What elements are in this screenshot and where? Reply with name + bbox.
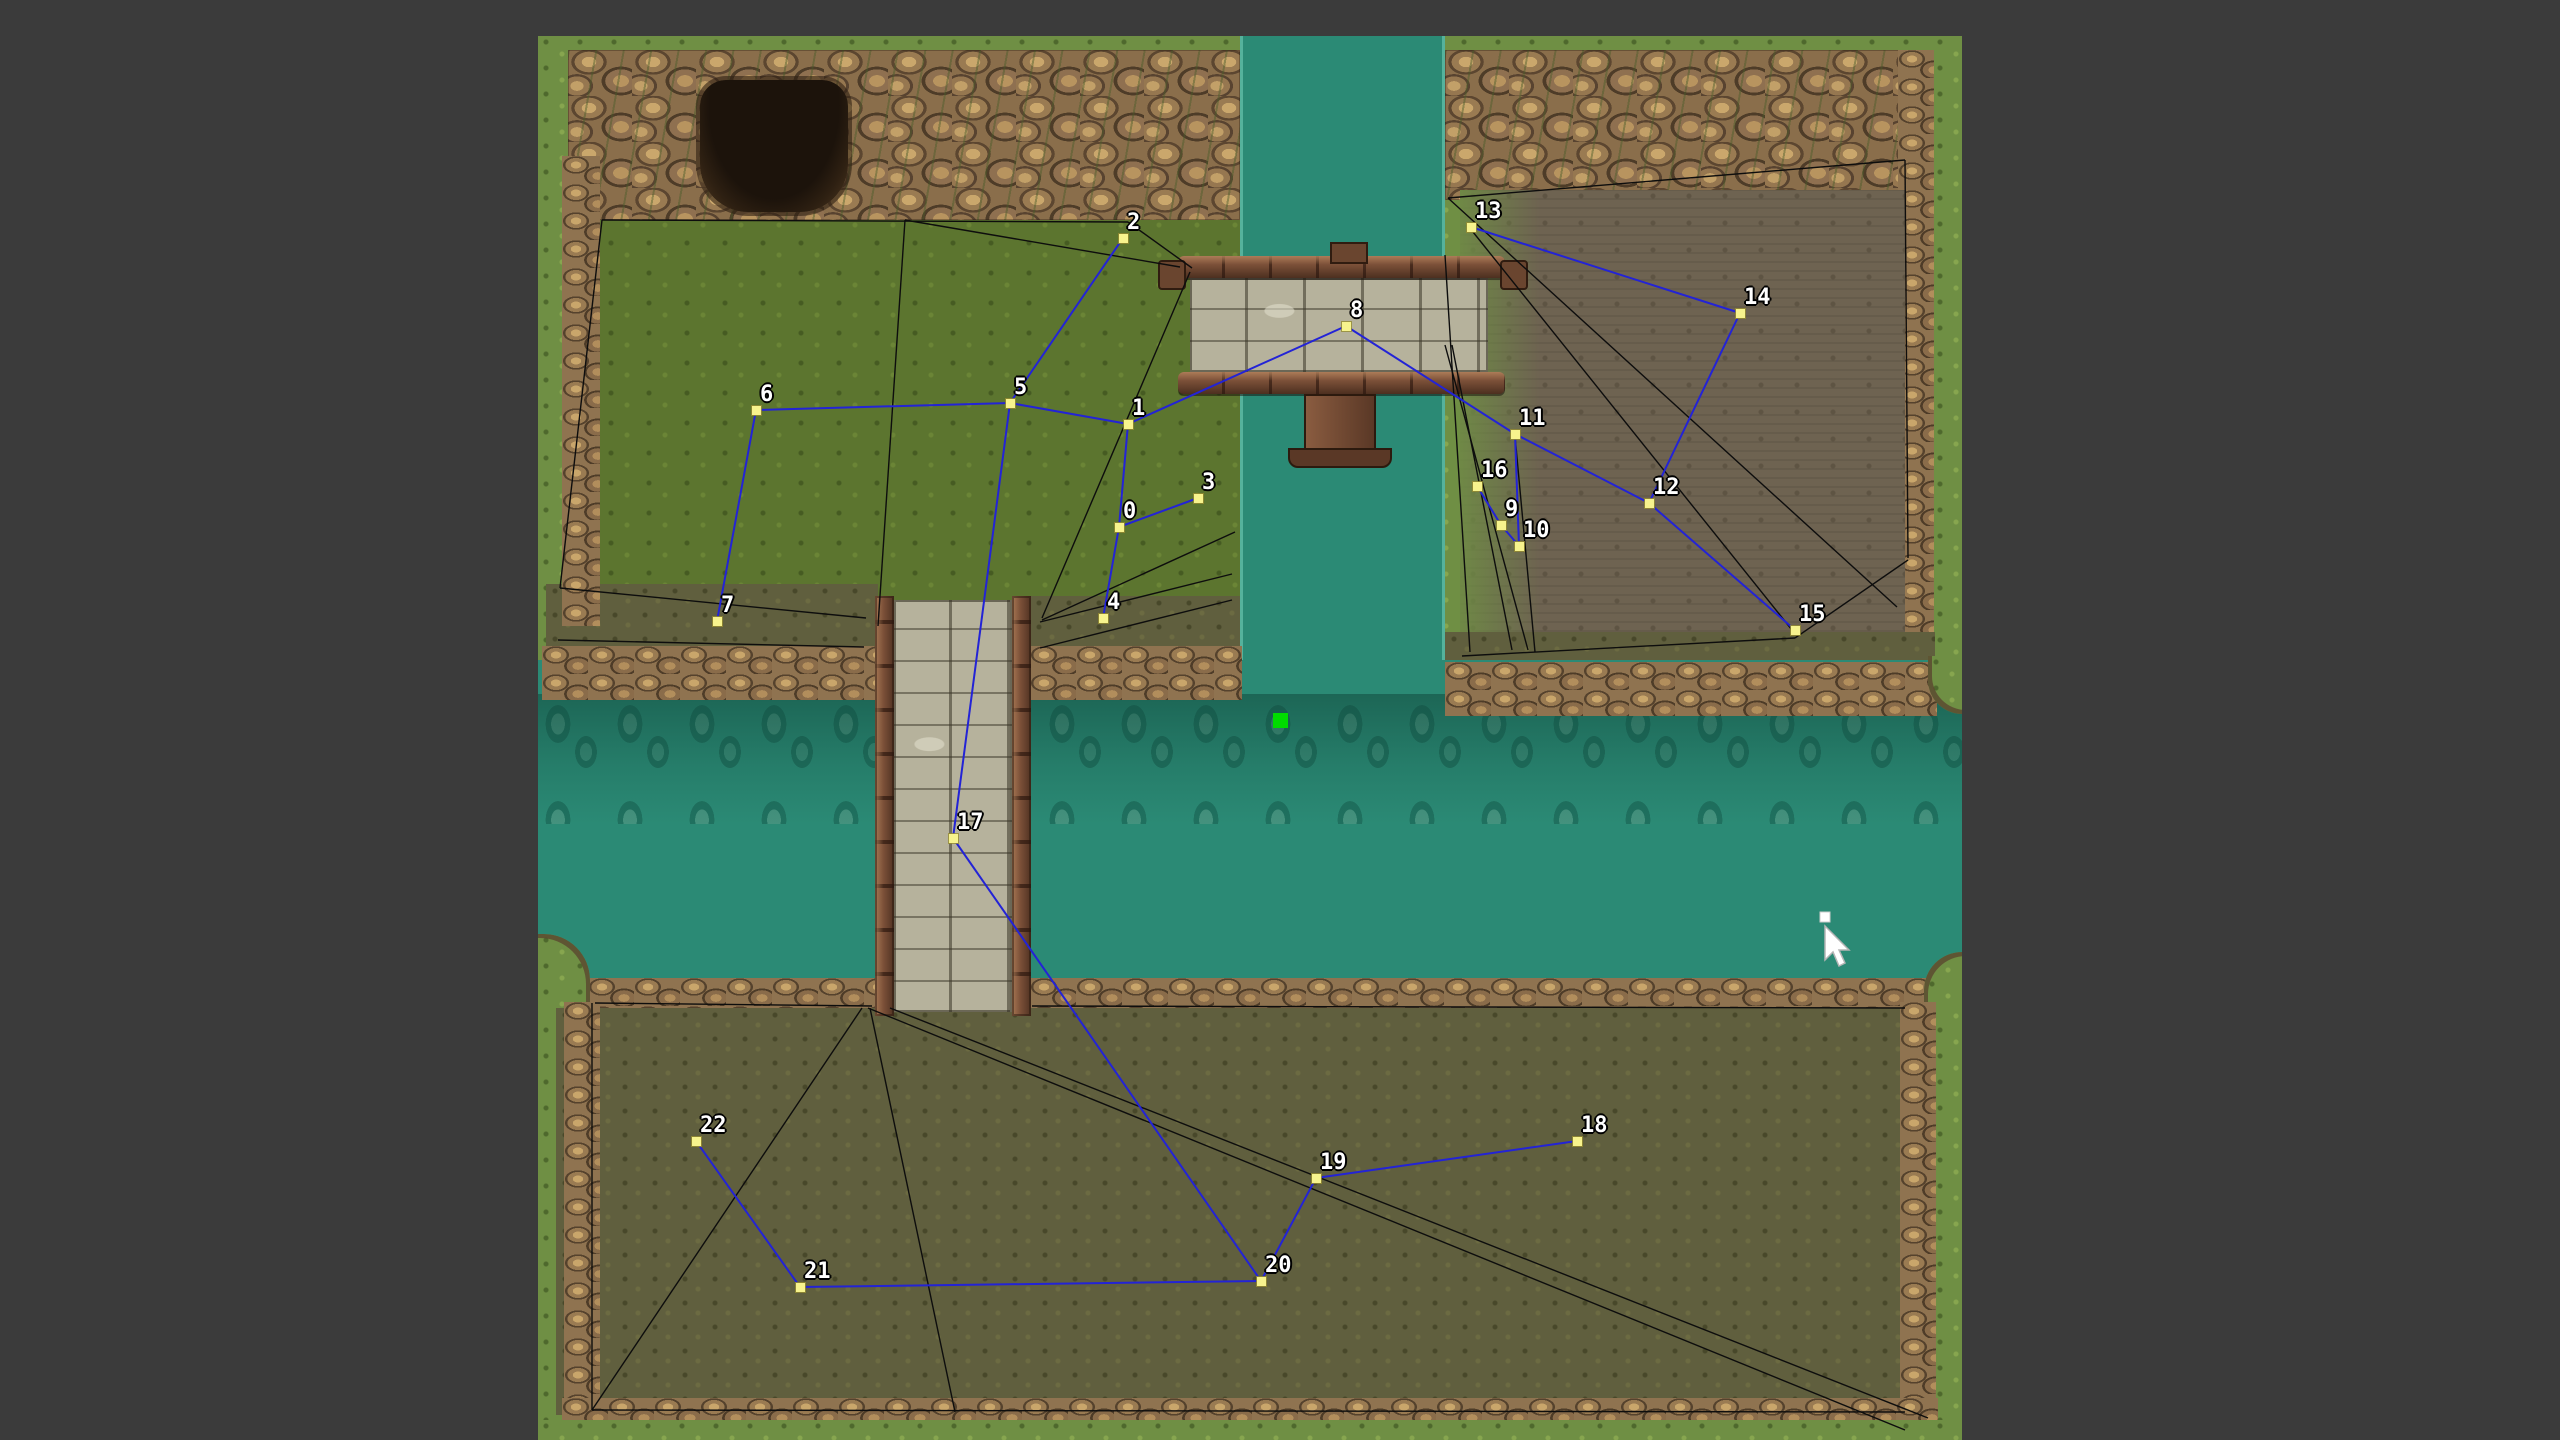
graph-node-label-0: 0 [1123, 501, 1136, 523]
graph-node-3[interactable] [1194, 494, 1203, 503]
graph-node-label-10: 10 [1523, 520, 1550, 542]
navmesh-segment [602, 220, 1128, 222]
navmesh-segment [878, 220, 905, 626]
navmesh-segment [558, 640, 864, 647]
graph-node-10[interactable] [1515, 542, 1524, 551]
navmesh-segment [868, 1008, 1905, 1430]
graph-edge [953, 838, 1261, 1281]
graph-node-label-16: 16 [1481, 460, 1508, 482]
graph-node-22[interactable] [692, 1137, 701, 1146]
selected-tile-marker [1273, 713, 1288, 728]
graph-node-6[interactable] [752, 406, 761, 415]
graph-node-label-19: 19 [1320, 1152, 1347, 1174]
graph-node-label-2: 2 [1127, 212, 1140, 234]
graph-edge [1346, 326, 1515, 434]
graph-node-label-8: 8 [1350, 300, 1363, 322]
graph-node-9[interactable] [1497, 521, 1506, 530]
graph-edge [756, 403, 1010, 410]
graph-node-label-4: 4 [1107, 592, 1120, 614]
graph-node-19[interactable] [1312, 1174, 1321, 1183]
mouse-cursor [1816, 908, 1856, 978]
navmesh-segment [592, 1008, 862, 1410]
graph-edge [696, 1141, 800, 1287]
graph-node-16[interactable] [1473, 482, 1482, 491]
graph-node-label-17: 17 [957, 812, 984, 834]
graph-node-0[interactable] [1115, 523, 1124, 532]
graph-node-20[interactable] [1257, 1277, 1266, 1286]
graph-edge [800, 1281, 1261, 1287]
navmesh-segment [890, 1008, 1928, 1418]
navmesh-segment [595, 1003, 872, 1006]
graph-node-8[interactable] [1342, 322, 1351, 331]
graph-node-label-7: 7 [721, 595, 734, 617]
graph-node-5[interactable] [1006, 399, 1015, 408]
graph-node-2[interactable] [1119, 234, 1128, 243]
graph-node-label-22: 22 [700, 1115, 727, 1137]
graph-node-21[interactable] [796, 1283, 805, 1292]
graph-edge [953, 403, 1010, 838]
navmesh-segment [870, 1008, 955, 1412]
graph-node-18[interactable] [1573, 1137, 1582, 1146]
navmesh-segment [1445, 255, 1470, 652]
graph-node-label-13: 13 [1475, 201, 1502, 223]
graph-edge [1010, 403, 1128, 424]
graph-edge [1471, 227, 1740, 313]
graph-node-label-14: 14 [1744, 287, 1771, 309]
navmesh-segment [1448, 160, 1905, 198]
graph-node-15[interactable] [1791, 626, 1800, 635]
graph-node-label-9: 9 [1505, 499, 1518, 521]
navmesh-segment [592, 1410, 1905, 1412]
graph-node-14[interactable] [1736, 309, 1745, 318]
navmesh-segment [1452, 345, 1512, 650]
graph-node-label-20: 20 [1265, 1255, 1292, 1277]
graph-edge [1316, 1141, 1577, 1178]
graph-node-label-5: 5 [1014, 377, 1027, 399]
graph-node-label-6: 6 [760, 384, 773, 406]
graph-node-label-15: 15 [1799, 604, 1826, 626]
graph-node-13[interactable] [1467, 223, 1476, 232]
graph-edge [1515, 434, 1649, 503]
graph-edge [717, 410, 756, 621]
graph-edge [1649, 503, 1795, 630]
graph-node-4[interactable] [1099, 614, 1108, 623]
graph-node-17[interactable] [949, 834, 958, 843]
graph-node-7[interactable] [713, 617, 722, 626]
graph-node-label-18: 18 [1581, 1115, 1608, 1137]
graph-node-11[interactable] [1511, 430, 1520, 439]
graph-node-1[interactable] [1124, 420, 1133, 429]
graph-node-label-12: 12 [1653, 477, 1680, 499]
navmesh-segment [560, 220, 602, 588]
navmesh-segment [1040, 574, 1232, 622]
graph-node-label-1: 1 [1132, 398, 1145, 420]
editor-viewport[interactable]: 012345678910111213141516171819202122 [0, 0, 2560, 1440]
navmesh-segment [560, 588, 866, 618]
navmesh-segment [1905, 160, 1908, 558]
graph-node-label-11: 11 [1519, 408, 1546, 430]
navmesh-segment [1032, 1006, 1905, 1008]
graph-edge [1477, 486, 1501, 525]
graph-node-label-3: 3 [1202, 472, 1215, 494]
graph-node-12[interactable] [1645, 499, 1654, 508]
graph-node-label-21: 21 [804, 1261, 831, 1283]
graph-edges [696, 227, 1795, 1287]
